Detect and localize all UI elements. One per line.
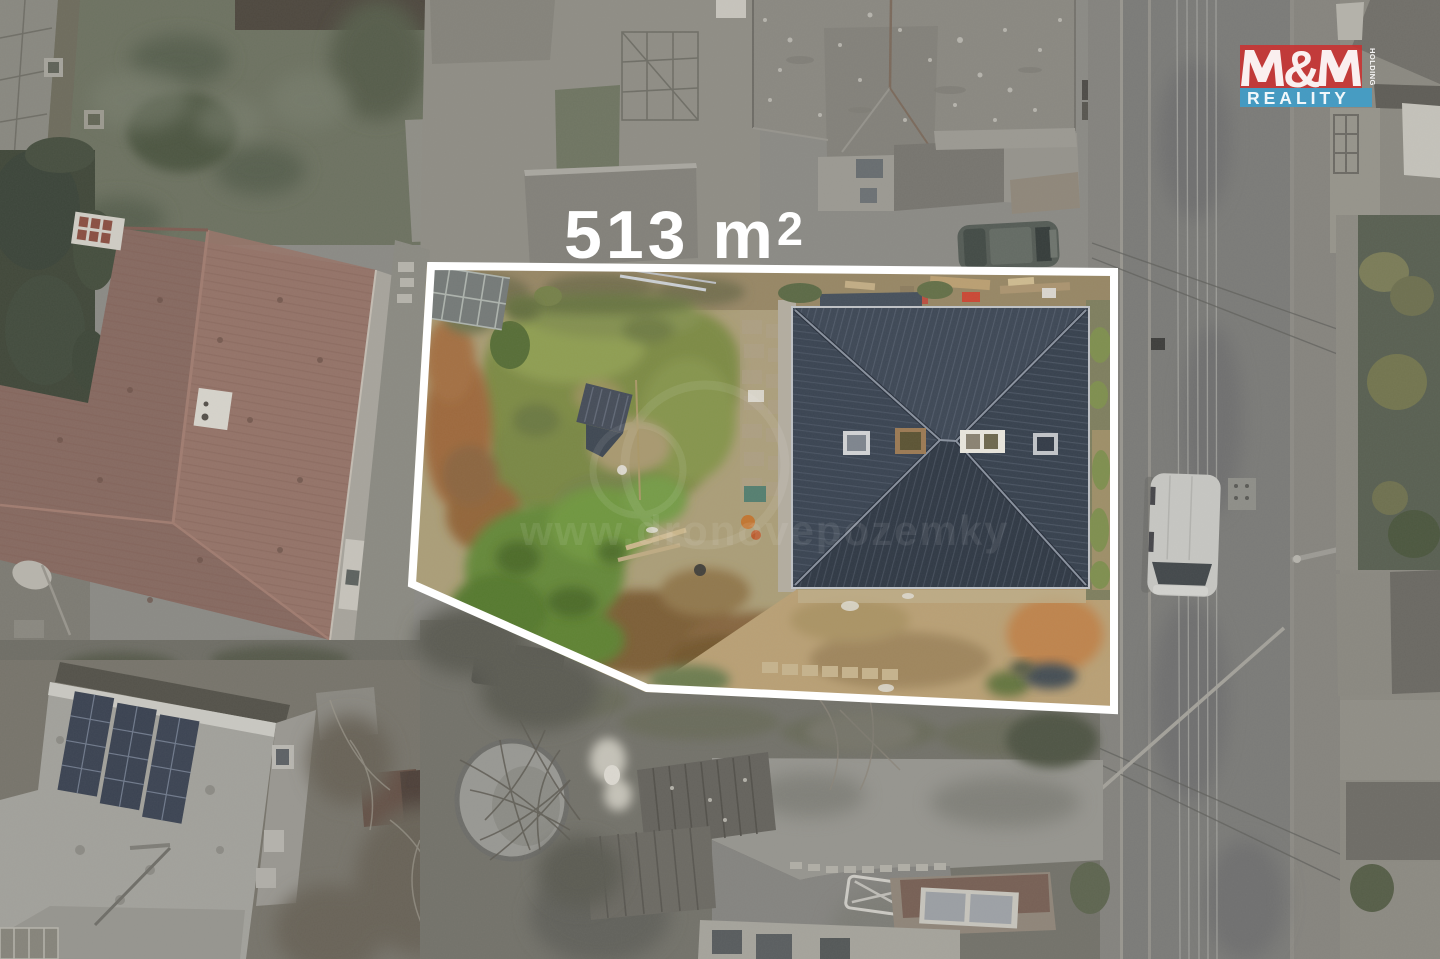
svg-text:REALITY: REALITY xyxy=(1247,88,1350,108)
svg-text:www.dronovepozemky: www.dronovepozemky xyxy=(519,507,1010,554)
svg-text:513 m2: 513 m2 xyxy=(564,197,807,273)
svg-text:HOLDING: HOLDING xyxy=(1368,48,1377,86)
